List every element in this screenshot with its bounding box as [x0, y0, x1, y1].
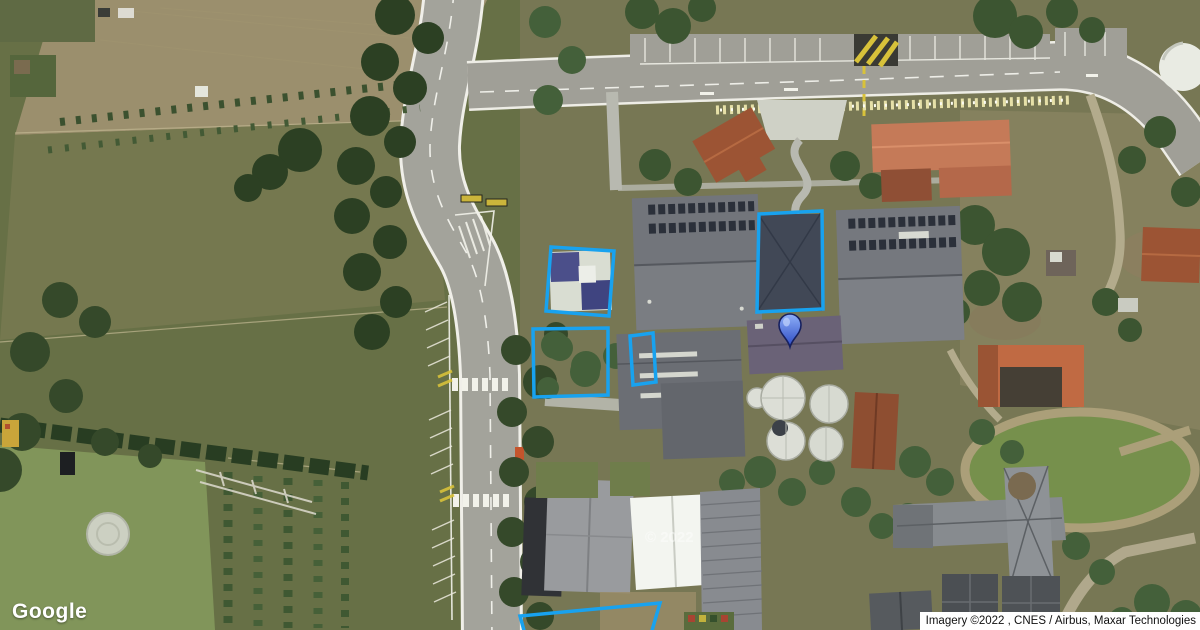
google-logo[interactable]: Google	[12, 600, 87, 624]
map-canvas[interactable]: © 2022 Google Imagery ©2022 , CNES / Air…	[0, 0, 1200, 630]
attribution-bar: Imagery ©2022 , CNES / Airbus, Maxar Tec…	[920, 612, 1200, 630]
imagery-watermark: © 2022	[645, 529, 694, 546]
hall-pinwheel-building	[549, 250, 612, 312]
attribution-text: Imagery ©2022 , CNES / Airbus, Maxar Tec…	[926, 612, 1196, 630]
